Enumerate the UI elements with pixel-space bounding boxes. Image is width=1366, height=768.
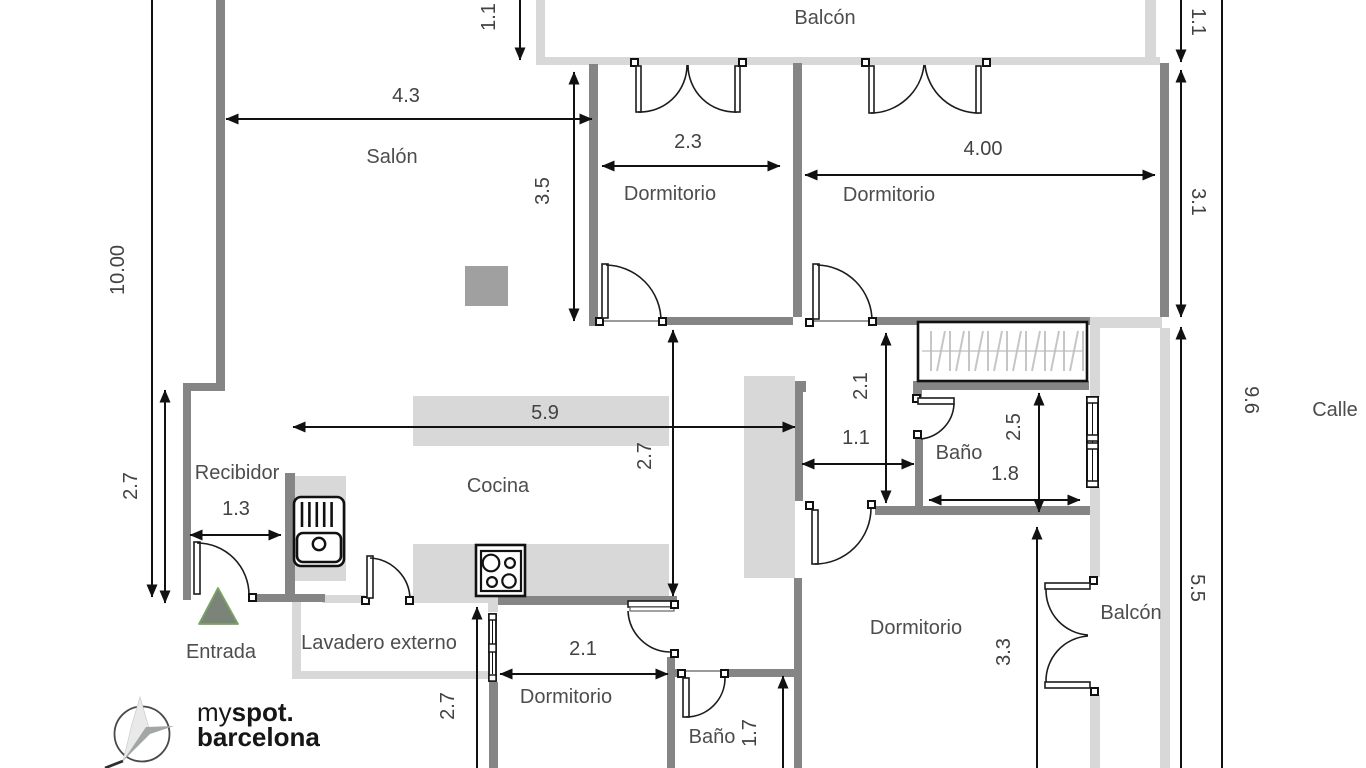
svg-text:3.1: 3.1	[1187, 188, 1209, 216]
svg-text:1.1: 1.1	[478, 3, 500, 31]
svg-text:Baño: Baño	[689, 726, 736, 748]
svg-text:barcelona: barcelona	[197, 722, 320, 752]
svg-text:Baño: Baño	[936, 442, 983, 464]
svg-text:Lavadero externo: Lavadero externo	[301, 632, 457, 654]
svg-text:4.00: 4.00	[964, 138, 1003, 160]
svg-text:5.9: 5.9	[531, 402, 559, 424]
svg-text:4.3: 4.3	[392, 85, 420, 107]
svg-text:1.1: 1.1	[1187, 8, 1209, 36]
svg-text:Entrada: Entrada	[186, 641, 257, 663]
svg-text:Dormitorio: Dormitorio	[843, 184, 935, 206]
svg-text:2.1: 2.1	[850, 372, 872, 400]
svg-text:9.6: 9.6	[1240, 386, 1262, 414]
svg-text:3.5: 3.5	[532, 177, 554, 205]
svg-text:Cocina: Cocina	[467, 475, 530, 497]
svg-text:Calle: Calle	[1312, 399, 1358, 421]
svg-text:3.3: 3.3	[993, 638, 1015, 666]
svg-text:Dormitorio: Dormitorio	[520, 686, 612, 708]
svg-text:1.1: 1.1	[842, 427, 870, 449]
svg-text:10.00: 10.00	[107, 245, 129, 295]
svg-text:2.5: 2.5	[1003, 413, 1025, 441]
svg-text:5.5: 5.5	[1186, 574, 1208, 602]
svg-text:Salón: Salón	[366, 146, 417, 168]
svg-text:1.7: 1.7	[739, 719, 761, 747]
svg-text:Balcón: Balcón	[1100, 602, 1161, 624]
svg-text:1.8: 1.8	[991, 463, 1019, 485]
svg-text:2.7: 2.7	[120, 472, 142, 500]
svg-text:Recibidor: Recibidor	[195, 462, 280, 484]
svg-text:2.1: 2.1	[569, 638, 597, 660]
svg-text:1.3: 1.3	[222, 498, 250, 520]
svg-text:Dormitorio: Dormitorio	[624, 183, 716, 205]
svg-text:Dormitorio: Dormitorio	[870, 617, 962, 639]
svg-text:2.7: 2.7	[437, 692, 459, 720]
svg-text:Balcón: Balcón	[794, 7, 855, 29]
svg-text:2.3: 2.3	[674, 131, 702, 153]
svg-text:2.7: 2.7	[634, 442, 656, 470]
